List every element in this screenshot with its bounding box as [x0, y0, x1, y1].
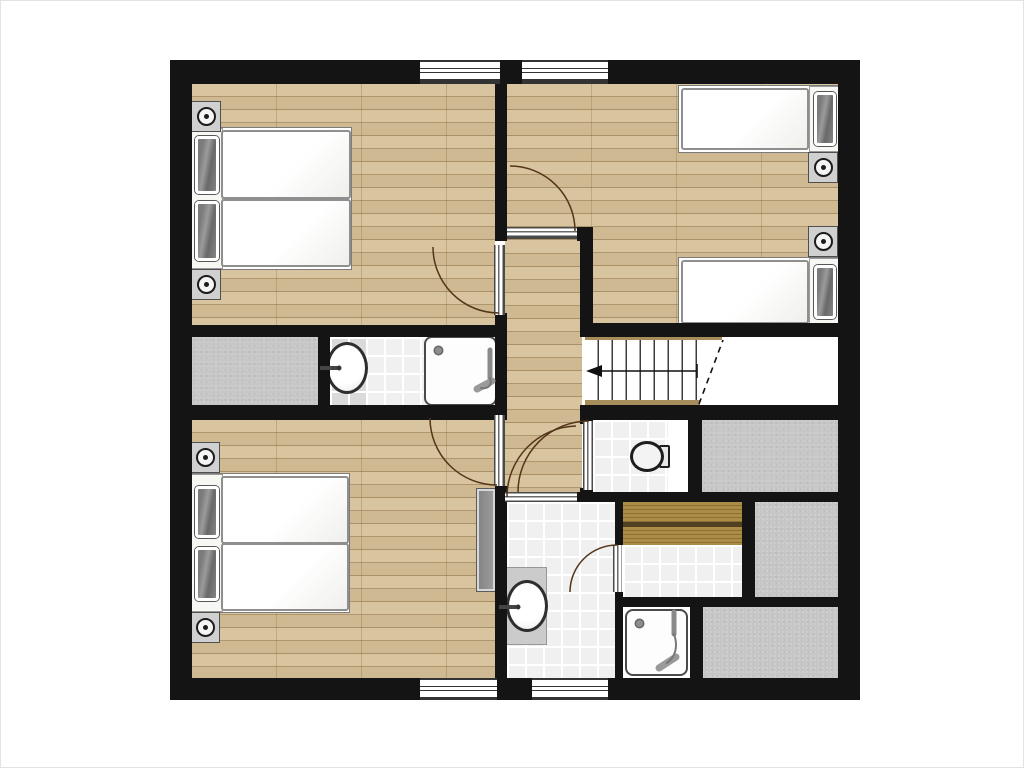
ensuite-washbasin	[326, 342, 368, 394]
interior-wall	[495, 84, 507, 241]
interior-wall	[192, 405, 507, 420]
bed-mattress	[681, 260, 809, 324]
interior-wall	[318, 337, 330, 405]
exterior-wall-bottom	[170, 678, 860, 700]
door-bedroom-bottom-left	[494, 415, 505, 486]
nightstand-lamp	[191, 269, 221, 300]
stair-treads	[585, 339, 700, 403]
nightstand-lamp	[191, 101, 221, 132]
wardrobe	[477, 489, 495, 591]
door-sauna	[613, 545, 622, 592]
main-bath-washbasin	[506, 580, 548, 632]
sauna-bench-lower	[623, 527, 742, 545]
bed-pillow	[814, 265, 836, 319]
interior-wall	[585, 323, 838, 337]
ensuite-shower-tray	[424, 336, 497, 406]
sauna-bench-upper	[623, 502, 742, 522]
bed-mattress	[221, 476, 349, 544]
floor-plan	[0, 0, 1024, 768]
bed-mattress	[681, 88, 809, 150]
exterior-wall-left	[170, 60, 192, 700]
window-bedroom-top-right	[522, 60, 608, 84]
window-bedroom-bottom-left	[420, 678, 497, 700]
bed-mattress	[221, 130, 351, 199]
bed-pillow	[195, 136, 219, 194]
door-wc	[583, 421, 593, 490]
interior-wall	[615, 502, 623, 545]
storage-left-floor	[192, 337, 318, 405]
interior-wall	[192, 325, 507, 337]
door-bedroom-top-left	[494, 245, 505, 315]
bed-mattress	[221, 199, 351, 267]
hallway-floor	[505, 241, 582, 502]
storage-right-upper-floor	[702, 420, 838, 492]
door-bedroom-top-right	[507, 227, 577, 239]
toilet-bowl	[630, 441, 664, 472]
interior-wall	[690, 605, 703, 678]
bed-pillow	[814, 92, 836, 146]
interior-wall	[580, 405, 838, 420]
shower-room-tray	[625, 609, 688, 676]
exterior-wall-right	[838, 60, 860, 700]
interior-wall	[577, 492, 838, 502]
storage-right-lower-floor	[703, 607, 838, 678]
nightstand-lamp	[190, 612, 220, 643]
interior-wall	[495, 502, 507, 678]
nightstand-lamp	[808, 226, 838, 257]
nightstand-lamp	[190, 442, 220, 473]
double-bed-top-left	[190, 127, 352, 270]
single-bed-upper	[678, 85, 840, 153]
interior-wall	[495, 227, 507, 241]
bed-pillow	[195, 547, 219, 601]
door-main-bathroom	[505, 492, 577, 502]
bed-pillow	[195, 201, 219, 261]
interior-wall	[580, 227, 593, 337]
interior-wall	[742, 502, 755, 597]
sauna-floor	[623, 545, 742, 598]
storage-right-middle-floor	[755, 502, 838, 597]
double-bed-bottom-left	[190, 473, 350, 613]
single-bed-lower	[678, 257, 840, 327]
bed-pillow	[195, 486, 219, 538]
interior-wall	[495, 492, 505, 502]
nightstand-lamp	[808, 152, 838, 183]
window-bedroom-top-left	[420, 60, 500, 84]
interior-wall	[617, 597, 838, 607]
interior-wall	[495, 313, 507, 415]
exterior-wall-top	[170, 60, 860, 84]
bed-mattress	[221, 543, 349, 611]
window-main-bathroom	[532, 678, 608, 700]
interior-wall	[688, 420, 702, 495]
wc-service-strip	[668, 420, 690, 492]
